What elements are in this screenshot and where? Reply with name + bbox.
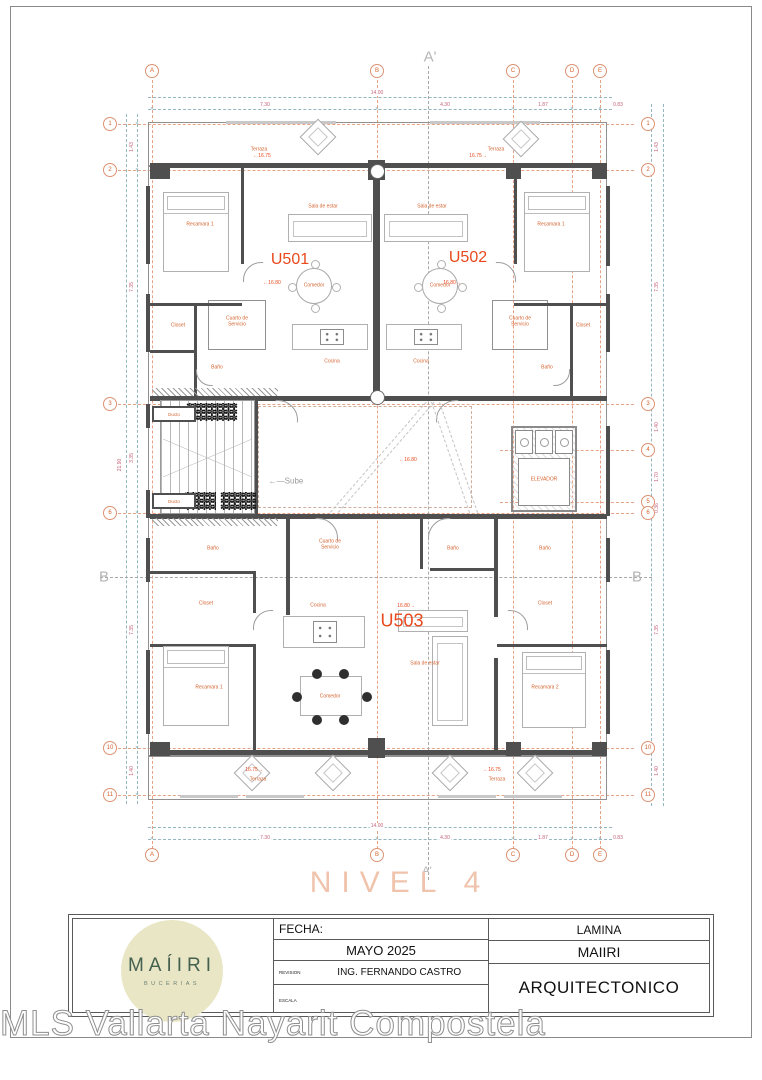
grid-bubble-col-A: A <box>145 64 159 78</box>
room-label: Sala de estar <box>410 661 439 667</box>
title-block-inner: MAÍIRI BUCERIAS FECHA: MAYO 2025 REVISIO… <box>72 918 710 1013</box>
dimension-line <box>137 114 138 804</box>
wall-segment <box>497 644 607 647</box>
wall-segment <box>286 517 290 615</box>
round-column <box>370 390 385 405</box>
grid-bubble-col-D: D <box>565 848 579 862</box>
sofa <box>384 214 468 242</box>
fixture <box>540 438 549 447</box>
window-segment <box>180 795 238 798</box>
planter: ✽✽✽✽✽✽✽✽✽ ✽✽✽✽✽✽✽✽✽ ✽✽✽✽✽✽✽✽✽ <box>220 492 256 512</box>
room-label: Sala de estar <box>308 204 337 210</box>
duct-shaft: Ducto <box>152 406 196 422</box>
dimension-line <box>663 104 664 806</box>
dim-tick: ✕ <box>135 401 139 407</box>
chair <box>332 283 341 292</box>
fecha-value: MAYO 2025 <box>274 940 488 961</box>
column <box>592 742 607 756</box>
room-label: Recamara 2 <box>531 685 558 691</box>
room-label: Recamara 1 <box>195 685 222 691</box>
chair <box>311 260 320 269</box>
chair <box>437 260 446 269</box>
fecha-label: FECHA: <box>274 919 488 940</box>
room-label: Terraza <box>250 777 267 783</box>
grid-bubble-row-10: 10 <box>103 741 117 755</box>
wall-segment <box>150 571 256 574</box>
column <box>368 738 385 758</box>
chair <box>292 692 302 702</box>
logo-name: MAÍIRI <box>128 955 216 977</box>
duct-shaft: Ducto <box>152 493 196 509</box>
room-label: Closet <box>171 323 185 329</box>
room-label: Cuarto de Servicio <box>319 540 341 551</box>
dim-tick: ✕ <box>135 167 139 173</box>
grid-bubble-row-4: 4 <box>641 443 655 457</box>
room-label: Closet <box>538 601 552 607</box>
fixture <box>520 438 529 447</box>
unit-label: U503 <box>380 611 423 632</box>
grid-bubble-col-E: E <box>593 64 607 78</box>
round-column <box>370 164 385 179</box>
elevation-marker: ←16.75 <box>483 767 501 773</box>
dimension-label: 14.00 <box>370 90 385 96</box>
room-label: Terraza <box>489 777 506 783</box>
dimension-label: 21.90 <box>117 458 123 473</box>
section-label: B <box>99 569 109 586</box>
dim-tick: ✕ <box>511 106 515 112</box>
chair <box>414 283 423 292</box>
dimension-label: 4.30 <box>439 102 451 108</box>
sofa <box>432 636 468 726</box>
grid-bubble-col-C: C <box>506 64 520 78</box>
hatched-wall <box>152 388 278 396</box>
dim-tick: ✕ <box>570 106 574 112</box>
elevation-marker: ←16.80 <box>263 280 281 286</box>
room-label: Cocina <box>413 359 429 365</box>
kitchen-counter <box>283 616 365 648</box>
kitchen-counter <box>386 324 462 350</box>
dimension-line <box>148 109 612 110</box>
dimension-label: 7.35 <box>654 281 660 293</box>
elevator-shaft <box>511 426 577 512</box>
chair <box>362 692 372 702</box>
wall-segment <box>430 568 498 571</box>
room-label: ELEVADOR <box>531 477 558 483</box>
chair <box>288 283 297 292</box>
elevation-marker: ←16.80 <box>399 457 417 463</box>
grid-bubble-col-B: B <box>370 64 384 78</box>
unit-label: U502 <box>449 249 487 267</box>
wall-segment <box>146 186 150 264</box>
dimension-line <box>126 114 127 804</box>
wall-segment <box>241 166 244 264</box>
title-block: MAÍIRI BUCERIAS FECHA: MAYO 2025 REVISIO… <box>68 914 714 1017</box>
chair <box>311 304 320 313</box>
dimension-label: 3.35 <box>129 452 135 464</box>
unit-label: U501 <box>271 251 309 269</box>
wall-segment <box>494 658 498 752</box>
wall-segment <box>606 650 610 734</box>
bed <box>163 192 229 272</box>
escala-row: ESCALA <box>274 985 488 1006</box>
room-label: Cuarto de Servicio <box>509 317 531 328</box>
fixture <box>560 438 569 447</box>
dim-tick: ✕ <box>135 510 139 516</box>
wall-segment <box>570 306 573 396</box>
grid-bubble-col-B: B <box>370 848 384 862</box>
room-label: Baño <box>539 546 551 552</box>
sofa <box>288 214 372 242</box>
room-label: Closet <box>576 323 590 329</box>
room-label: Cuarto de Servicio <box>226 317 248 328</box>
grid-bubble-row-6: 6 <box>103 506 117 520</box>
grid-bubble-row-6: 6 <box>641 506 655 520</box>
section-label: B <box>632 569 642 586</box>
dimension-label: 7.35 <box>654 624 660 636</box>
stove <box>313 621 337 643</box>
dim-tick: ✕ <box>135 792 139 798</box>
dim-tick: ✕ <box>150 836 154 842</box>
grid-bubble-row-3: 3 <box>641 397 655 411</box>
dimension-line <box>148 97 612 98</box>
room-label: Cocina <box>310 603 326 609</box>
revision-label: REVISION <box>279 970 301 975</box>
utility-closet <box>555 430 573 454</box>
grid-bubble-row-2: 2 <box>641 163 655 177</box>
stair-landing <box>163 439 252 477</box>
grid-bubble-col-E: E <box>593 848 607 862</box>
dimension-label: 4.30 <box>439 835 451 841</box>
dim-tick: ✕ <box>598 836 602 842</box>
elevation-marker: 16.80→ <box>443 280 461 286</box>
wall-segment <box>606 426 610 516</box>
dim-tick: ✕ <box>150 106 154 112</box>
utility-closet <box>515 430 533 454</box>
lamina-label: LAMINA <box>489 919 709 941</box>
project-name: MAIIRI <box>489 941 709 964</box>
revision-row: REVISION ING. FERNANDO CASTRO <box>274 961 488 985</box>
dim-tick: ✕ <box>598 106 602 112</box>
section-label: A' <box>424 49 437 66</box>
dimension-label: 14.00 <box>370 823 385 829</box>
dim-tick: ✕ <box>375 106 379 112</box>
chair <box>312 715 322 725</box>
hatched-wall <box>152 518 278 526</box>
room-label: Closet <box>199 601 213 607</box>
room-label: Recamara 1 <box>537 222 564 228</box>
wall-segment <box>606 538 610 582</box>
revision-value: ING. FERNANDO CASTRO <box>311 967 488 978</box>
utility-closet <box>535 430 553 454</box>
dim-tick: ✕ <box>511 836 515 842</box>
dim-tick: ✕ <box>135 745 139 751</box>
dimension-label: 0.83 <box>612 102 624 108</box>
column <box>506 742 521 756</box>
elevation-marker: 16.75→ <box>469 153 487 159</box>
grid-bubble-col-A: A <box>145 848 159 862</box>
dimension-label: 1.40 <box>654 765 660 777</box>
dimension-label: 1.43 <box>654 141 660 153</box>
room-label: Comedor <box>320 694 341 700</box>
room-label: Baño <box>211 365 223 371</box>
wall-segment <box>606 294 610 352</box>
wall-segment <box>514 166 517 264</box>
dim-tick: ✕ <box>375 836 379 842</box>
grid-bubble-col-D: D <box>565 64 579 78</box>
logo-subtitle: BUCERIAS <box>144 981 200 987</box>
wall-segment <box>494 517 498 617</box>
dimension-label: 1.43 <box>129 141 135 153</box>
chair <box>437 304 446 313</box>
column <box>150 742 170 756</box>
wall-segment <box>420 517 423 569</box>
room-label: Baño <box>447 546 459 552</box>
logo-cell: MAÍIRI BUCERIAS <box>73 919 274 1012</box>
room-label: Recamara 1 <box>186 222 213 228</box>
dimension-label: 0.83 <box>612 835 624 841</box>
dimension-label: 1.70 <box>654 471 660 483</box>
dimension-label: 1.40 <box>654 421 660 433</box>
dim-tick: ✕ <box>570 836 574 842</box>
grid-bubble-row-11: 11 <box>103 788 117 802</box>
chair <box>312 669 322 679</box>
date-column: FECHA: MAYO 2025 REVISION ING. FERNANDO … <box>274 919 489 1012</box>
mls-watermark: MLS Vallarta Nayarit Compostela <box>0 1004 546 1044</box>
stove <box>320 329 344 345</box>
lamina-column: LAMINA MAIIRI ARQUITECTONICO <box>489 919 709 1012</box>
room-label: Comedor <box>304 283 325 289</box>
grid-bubble-row-2: 2 <box>103 163 117 177</box>
dimension-label: 7.35 <box>129 281 135 293</box>
chair <box>339 669 349 679</box>
bed <box>524 192 590 272</box>
window-segment <box>504 795 562 798</box>
wall-segment <box>514 303 606 306</box>
grid-bubble-row-1: 1 <box>103 117 117 131</box>
wall-segment <box>253 646 256 752</box>
wall-segment <box>146 650 150 734</box>
level-title: NIVEL 4 <box>250 866 550 900</box>
grid-bubble-row-11: 11 <box>641 788 655 802</box>
wall-segment <box>146 404 150 428</box>
column <box>592 163 607 179</box>
wall-segment <box>146 538 150 582</box>
elevation-marker: 16.80→ <box>397 603 415 609</box>
grid-bubble-row-10: 10 <box>641 741 655 755</box>
window-segment <box>246 795 304 798</box>
elevation-marker: 16.75→ <box>245 767 263 773</box>
dim-tick: ✕ <box>135 121 139 127</box>
dimension-label: 1.87 <box>537 102 549 108</box>
wall-segment <box>253 571 256 613</box>
escala-label: ESCALA <box>279 998 297 1003</box>
dimension-label: 7.30 <box>259 835 271 841</box>
room-label: Baño <box>541 365 553 371</box>
drawing-sheet: AA✕✕BB✕✕CC✕✕DD✕✕EE✕✕1✕1✕2✕2✕3✕3✕4✕5✕6✕6✕… <box>0 0 762 1080</box>
dimension-label: 1.40 <box>129 765 135 777</box>
room-label: Sala de estar <box>417 204 446 210</box>
grid-bubble-col-C: C <box>506 848 520 862</box>
kitchen-counter <box>292 324 368 350</box>
dimension-label: 7.35 <box>129 624 135 636</box>
wall-segment <box>150 350 196 353</box>
elevation-marker: ←16.75 <box>253 153 271 159</box>
dimension-label: 7.30 <box>259 102 271 108</box>
room-label: Terraza <box>251 147 268 153</box>
wall-segment <box>373 166 380 398</box>
column <box>506 163 521 179</box>
stove <box>414 329 438 345</box>
wall-segment <box>146 490 150 518</box>
room-label: Cocina <box>324 359 340 365</box>
window-segment <box>438 795 496 798</box>
stairs-direction-label: ←—Sube <box>269 477 304 486</box>
wall-segment <box>606 186 610 266</box>
chair <box>339 715 349 725</box>
column <box>150 163 170 179</box>
grid-bubble-row-3: 3 <box>103 397 117 411</box>
room-label: Baño <box>207 546 219 552</box>
dimension-label: 1.87 <box>537 835 549 841</box>
grid-bubble-row-1: 1 <box>641 117 655 131</box>
room-label: Terraza <box>488 147 505 153</box>
